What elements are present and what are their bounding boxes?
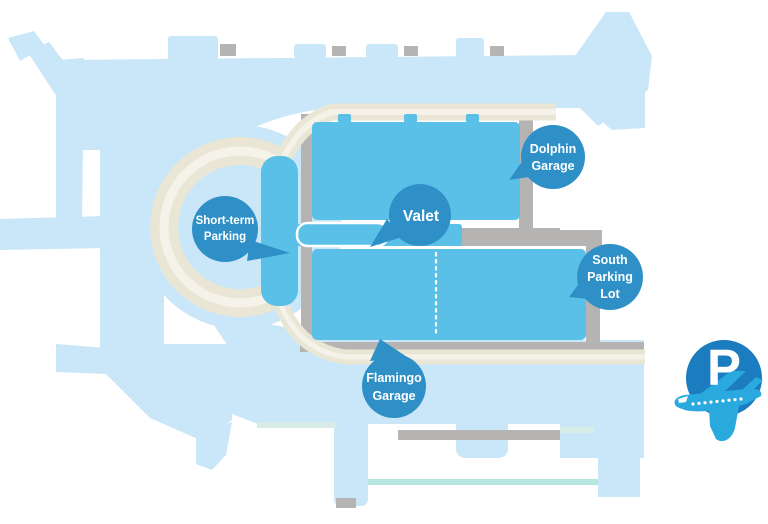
airport-parking-map: Short-term Parking Valet Dolphin Garage … xyxy=(0,0,768,524)
south-parking-structure xyxy=(312,249,586,340)
grounds-shape xyxy=(294,44,326,58)
airport-map-canvas: Short-term Parking Valet Dolphin Garage … xyxy=(0,0,768,524)
grounds-shape xyxy=(56,344,106,374)
road-segment xyxy=(220,44,236,56)
marker-label-line: Garage xyxy=(531,159,574,173)
grounds-shape xyxy=(366,44,398,58)
marker-label-line: Parking xyxy=(204,231,246,243)
marker-label-line: Flamingo xyxy=(366,371,422,385)
grounds-shape xyxy=(104,344,232,440)
marker-bubble[interactable] xyxy=(192,196,258,262)
mint-line xyxy=(257,422,337,428)
airplane-fin xyxy=(709,406,739,441)
marker-bubble[interactable] xyxy=(362,354,426,418)
structure-tab xyxy=(338,114,351,123)
marker-label-line: Lot xyxy=(600,287,620,301)
marker-label-line: Garage xyxy=(372,389,415,403)
marker-bubble[interactable] xyxy=(521,125,585,189)
road-segment xyxy=(398,430,560,440)
logo-letter: P xyxy=(707,339,741,396)
teal-line xyxy=(368,479,598,485)
grounds-shape xyxy=(168,36,218,60)
road-segment xyxy=(560,230,602,246)
structure-tab xyxy=(466,114,479,123)
airport-parking-logo: P xyxy=(675,339,763,441)
marker-label-line: South xyxy=(592,253,627,267)
marker-label-line: Short-term xyxy=(196,215,255,227)
grounds-shape xyxy=(0,216,106,250)
road-segment xyxy=(336,498,356,508)
road-segment xyxy=(332,46,346,56)
mint-line xyxy=(560,427,594,433)
grounds-shape xyxy=(456,38,484,58)
grounds-shape xyxy=(196,422,232,470)
road-segment xyxy=(490,46,504,56)
grounds-shape xyxy=(56,58,84,222)
marker-label-line: Parking xyxy=(587,270,633,284)
road-segment xyxy=(404,46,418,56)
marker-label-line: Dolphin xyxy=(530,142,577,156)
structure-tab xyxy=(404,114,417,123)
marker-label-line: Valet xyxy=(403,208,439,225)
short-term-parking-structure xyxy=(261,156,298,306)
